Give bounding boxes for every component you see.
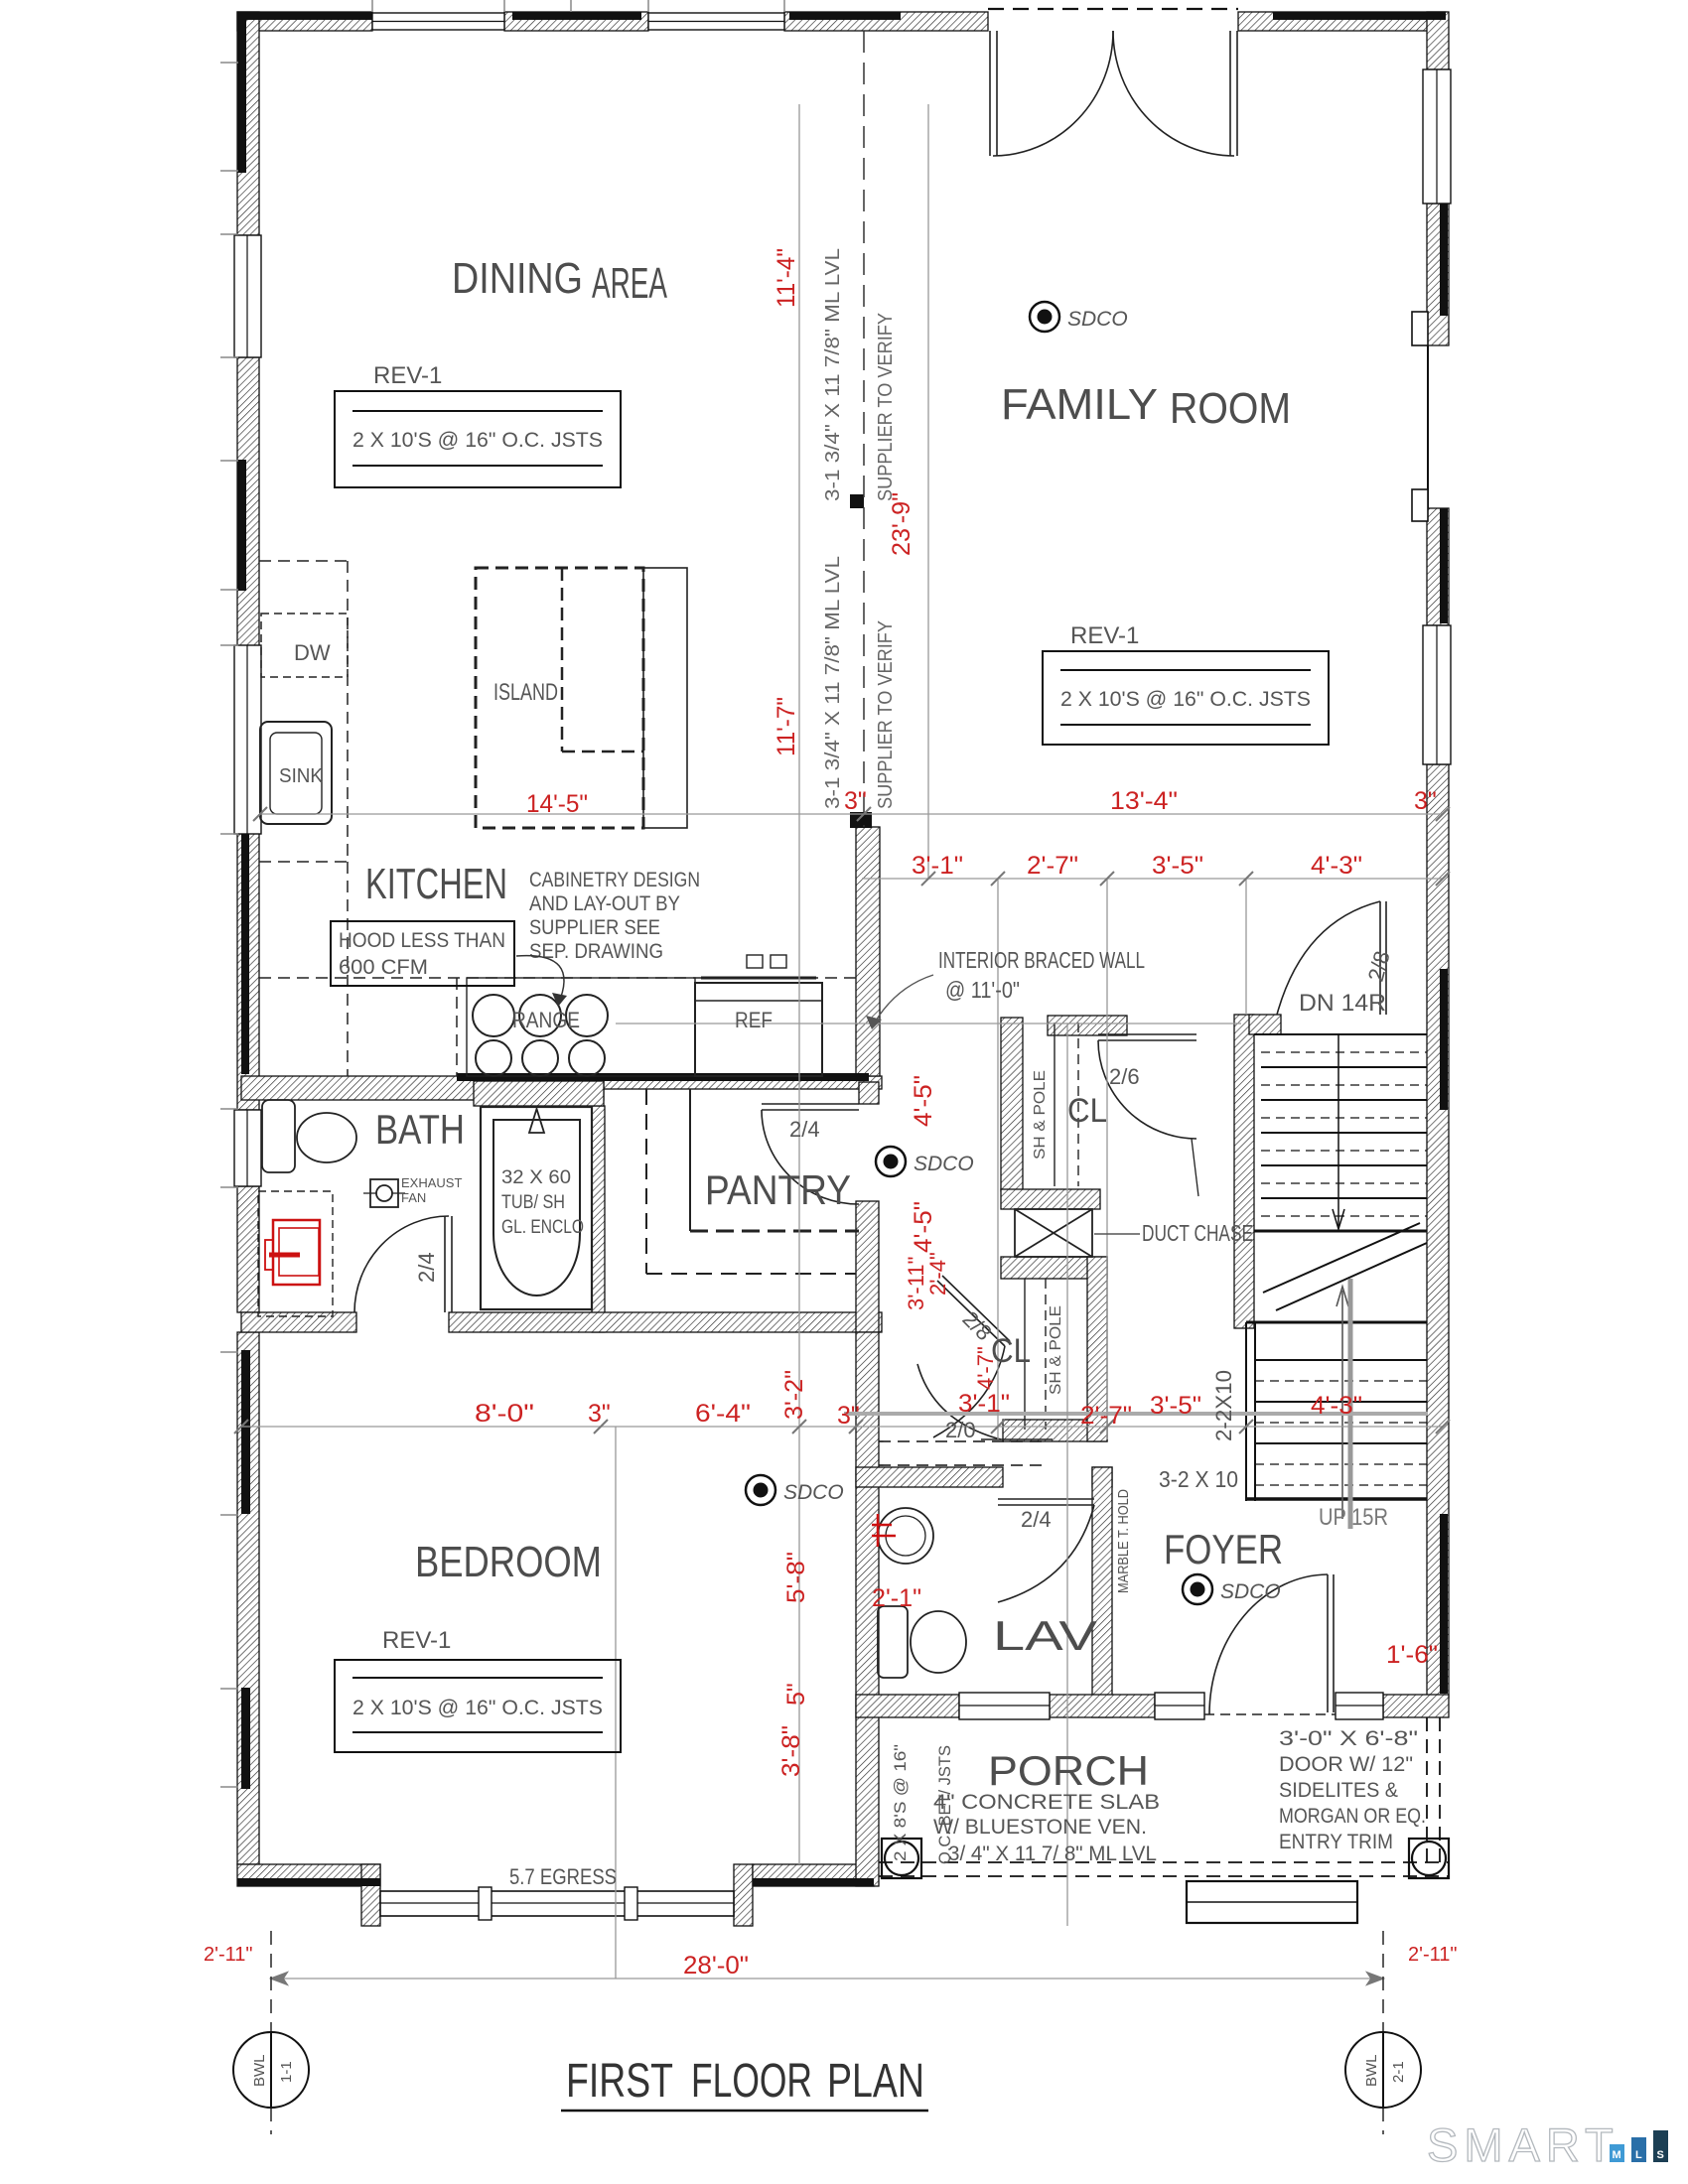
svg-text:SH & POLE: SH & POLE [1032, 1070, 1049, 1160]
svg-text:CABINETRY DESIGN: CABINETRY DESIGN [529, 869, 700, 891]
svg-text:LAV: LAV [993, 1612, 1097, 1659]
svg-text:3": 3" [844, 787, 867, 815]
svg-text:2-2X10: 2-2X10 [1211, 1370, 1236, 1441]
svg-text:2 X 10'S @ 16" O.C. JSTS: 2 X 10'S @ 16" O.C. JSTS [352, 1697, 603, 1719]
svg-text:3-2 X 10: 3-2 X 10 [1159, 1466, 1238, 1492]
svg-text:DOOR W/ 12": DOOR W/ 12" [1279, 1753, 1413, 1776]
svg-text:ROOM: ROOM [1170, 384, 1291, 433]
svg-text:SH & POLE: SH & POLE [1048, 1305, 1064, 1395]
svg-text:2-1: 2-1 [1390, 2061, 1407, 2083]
svg-text:REV-1: REV-1 [1070, 622, 1139, 649]
svg-text:2'-7": 2'-7" [1027, 852, 1078, 880]
svg-text:3'-1": 3'-1" [958, 1390, 1010, 1418]
svg-text:11'-4": 11'-4" [773, 248, 800, 308]
svg-text:3-1 3/4" X 11 7/8" ML LVL: 3-1 3/4" X 11 7/8" ML LVL [822, 248, 844, 501]
svg-text:1-1: 1-1 [278, 2061, 295, 2083]
svg-text:PLAN: PLAN [827, 2055, 924, 2108]
svg-text:FOYER: FOYER [1164, 1526, 1283, 1572]
svg-text:2/0: 2/0 [945, 1418, 976, 1442]
svg-text:SUPPLIER TO VERIFY: SUPPLIER TO VERIFY [875, 620, 897, 809]
svg-text:2 X 8'S @ 16": 2 X 8'S @ 16" [891, 1744, 910, 1861]
svg-text:SDCO: SDCO [783, 1481, 844, 1504]
svg-text:DW: DW [294, 640, 331, 665]
svg-text:BWL: BWL [251, 2054, 268, 2087]
svg-text:3'-0" X 6'-8": 3'-0" X 6'-8" [1279, 1727, 1418, 1750]
svg-text:PANTRY: PANTRY [705, 1166, 851, 1213]
svg-text:4" CONCRETE SLAB: 4" CONCRETE SLAB [933, 1791, 1160, 1814]
svg-text:2 X 10'S @ 16" O.C. JSTS: 2 X 10'S @ 16" O.C. JSTS [352, 429, 603, 452]
svg-text:2'-11": 2'-11" [1408, 1944, 1457, 1966]
svg-text:AREA: AREA [592, 259, 667, 308]
svg-text:BWL: BWL [1363, 2054, 1380, 2087]
svg-text:14'-5": 14'-5" [526, 790, 588, 818]
svg-text:DINING: DINING [452, 254, 583, 303]
svg-text:O.C. BET/ JSTS: O.C. BET/ JSTS [935, 1745, 954, 1864]
svg-text:4'-3": 4'-3" [1311, 1392, 1362, 1420]
svg-text:KITCHEN: KITCHEN [365, 860, 507, 908]
svg-text:2/4: 2/4 [1021, 1507, 1052, 1532]
svg-text:SDCO: SDCO [1067, 308, 1128, 331]
svg-text:BATH: BATH [375, 1106, 465, 1153]
svg-text:L: L [1635, 2149, 1642, 2161]
svg-text:SDCO: SDCO [1220, 1580, 1281, 1603]
svg-text:TUB/ SH: TUB/ SH [501, 1192, 565, 1213]
svg-text:FAMILY: FAMILY [1001, 380, 1158, 429]
svg-text:3'-11": 3'-11" [904, 1257, 928, 1310]
svg-text:32 X 60: 32 X 60 [501, 1167, 571, 1188]
svg-text:3'-1": 3'-1" [912, 852, 963, 880]
svg-text:DUCT CHASE: DUCT CHASE [1142, 1220, 1253, 1246]
svg-text:2'-1": 2'-1" [872, 1584, 921, 1612]
svg-text:PORCH: PORCH [988, 1747, 1149, 1794]
svg-text:FIRST: FIRST [566, 2055, 673, 2108]
svg-text:SMART: SMART [1427, 2118, 1619, 2171]
svg-text:EXHAUST: EXHAUST [401, 1175, 462, 1190]
svg-text:2 X 10'S @ 16" O.C. JSTS: 2 X 10'S @ 16" O.C. JSTS [1060, 688, 1311, 711]
svg-text:11'-7": 11'-7" [773, 697, 800, 756]
svg-text:REV-1: REV-1 [382, 1627, 451, 1654]
svg-text:RANGE: RANGE [512, 1008, 580, 1032]
svg-text:13'-4": 13'-4" [1110, 787, 1178, 815]
svg-text:23'-9": 23'-9" [888, 492, 915, 556]
svg-text:2'-11": 2'-11" [204, 1944, 252, 1966]
svg-text:AND LAY-OUT BY: AND LAY-OUT BY [529, 892, 680, 915]
svg-text:SINK: SINK [279, 765, 324, 787]
svg-text:3'-8": 3'-8" [777, 1725, 805, 1777]
svg-text:UP 15R: UP 15R [1319, 1504, 1388, 1531]
svg-text:SUPPLIER TO VERIFY: SUPPLIER TO VERIFY [875, 313, 897, 501]
svg-text:600 CFM: 600 CFM [339, 956, 428, 979]
svg-text:FAN: FAN [401, 1190, 426, 1205]
svg-text:CL: CL [1067, 1092, 1107, 1130]
svg-text:@ 11'-0": @ 11'-0" [945, 977, 1020, 1003]
svg-text:REV-1: REV-1 [373, 362, 442, 389]
svg-text:SUPPLIER SEE: SUPPLIER SEE [529, 916, 660, 939]
svg-text:MORGAN OR EQ.: MORGAN OR EQ. [1279, 1805, 1426, 1828]
svg-text:3": 3" [588, 1400, 611, 1428]
svg-text:4'-5": 4'-5" [910, 1075, 937, 1127]
svg-text:SIDELITES &: SIDELITES & [1279, 1779, 1398, 1802]
svg-text:INTERIOR BRACED WALL: INTERIOR BRACED WALL [938, 947, 1145, 973]
svg-text:4'-5": 4'-5" [910, 1201, 937, 1253]
svg-text:M: M [1613, 2149, 1621, 2161]
svg-text:MARBLE T. HOLD: MARBLE T. HOLD [1115, 1489, 1132, 1593]
svg-text:3-1 3/4" X 11 7/8" ML LVL: 3-1 3/4" X 11 7/8" ML LVL [822, 556, 844, 809]
svg-text:2'-4": 2'-4" [925, 1252, 950, 1296]
svg-text:4'-3": 4'-3" [1311, 852, 1362, 880]
svg-text:5.7 EGRESS: 5.7 EGRESS [509, 1864, 617, 1889]
svg-text:3": 3" [837, 1402, 860, 1430]
svg-text:S: S [1657, 2149, 1664, 2161]
svg-text:8'-0": 8'-0" [475, 1400, 534, 1428]
svg-text:2/4: 2/4 [414, 1252, 439, 1283]
svg-text:REF: REF [735, 1008, 773, 1032]
svg-text:W/ BLUESTONE VEN.: W/ BLUESTONE VEN. [933, 1816, 1147, 1839]
svg-text:2'-7": 2'-7" [1080, 1402, 1132, 1430]
svg-text:3'-5": 3'-5" [1152, 852, 1203, 880]
svg-text:3": 3" [1414, 787, 1437, 815]
svg-text:3'-5": 3'-5" [1150, 1392, 1201, 1420]
svg-text:2/6: 2/6 [1109, 1064, 1140, 1089]
svg-text:3/ 4" X 11 7/ 8" ML LVL: 3/ 4" X 11 7/ 8" ML LVL [948, 1843, 1157, 1865]
svg-text:2/4: 2/4 [789, 1117, 820, 1142]
svg-text:28'-0": 28'-0" [683, 1952, 749, 1979]
svg-text:5'-8": 5'-8" [782, 1552, 810, 1603]
svg-text:SDCO: SDCO [914, 1153, 974, 1175]
svg-text:DN 14R: DN 14R [1299, 990, 1386, 1017]
svg-text:GL. ENCLO: GL. ENCLO [501, 1217, 584, 1238]
svg-text:ISLAND: ISLAND [493, 679, 558, 706]
svg-text:6'-4": 6'-4" [695, 1400, 751, 1428]
svg-text:5": 5" [782, 1683, 810, 1706]
svg-text:FLOOR: FLOOR [691, 2055, 812, 2108]
svg-text:HOOD LESS THAN: HOOD LESS THAN [339, 929, 505, 952]
svg-text:ENTRY TRIM: ENTRY TRIM [1279, 1831, 1393, 1853]
svg-text:BEDROOM: BEDROOM [415, 1538, 602, 1586]
svg-text:1'-6": 1'-6" [1386, 1641, 1438, 1669]
svg-text:3'-2": 3'-2" [780, 1370, 808, 1420]
svg-text:4'-7": 4'-7" [973, 1346, 998, 1390]
